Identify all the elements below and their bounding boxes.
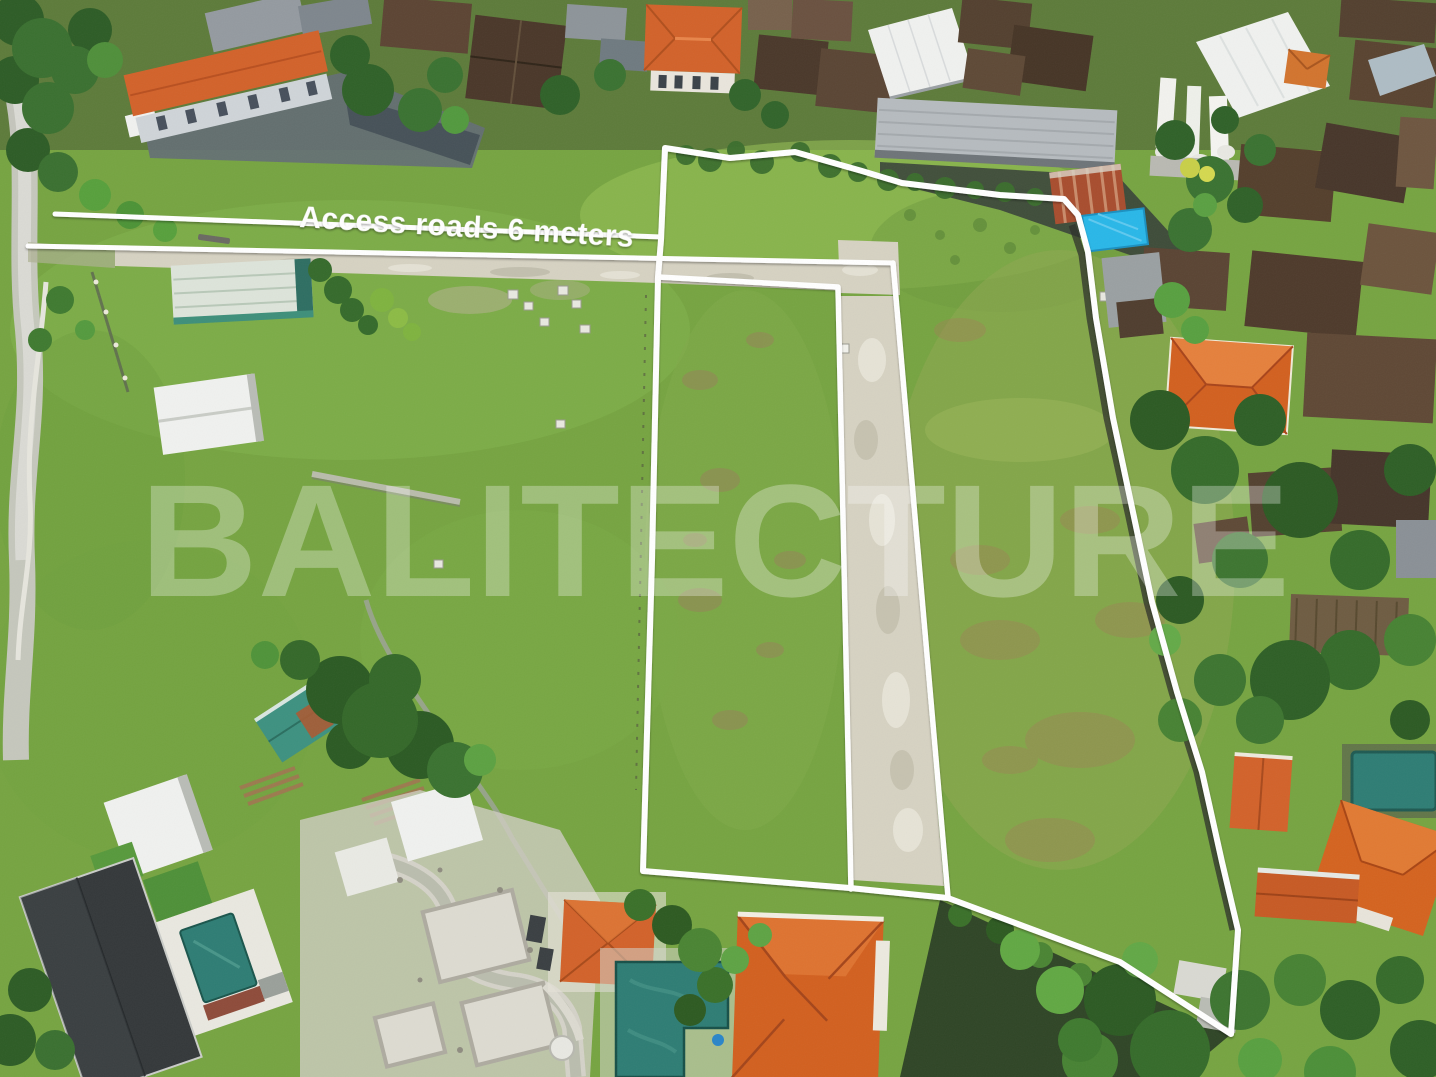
aerial-photo-canvas: Access roads 6 meters BALITECTURE: [0, 0, 1436, 1077]
photo-grain-overlay: [0, 0, 1436, 1077]
aerial-photo: Access roads 6 meters BALITECTURE: [0, 0, 1436, 1077]
